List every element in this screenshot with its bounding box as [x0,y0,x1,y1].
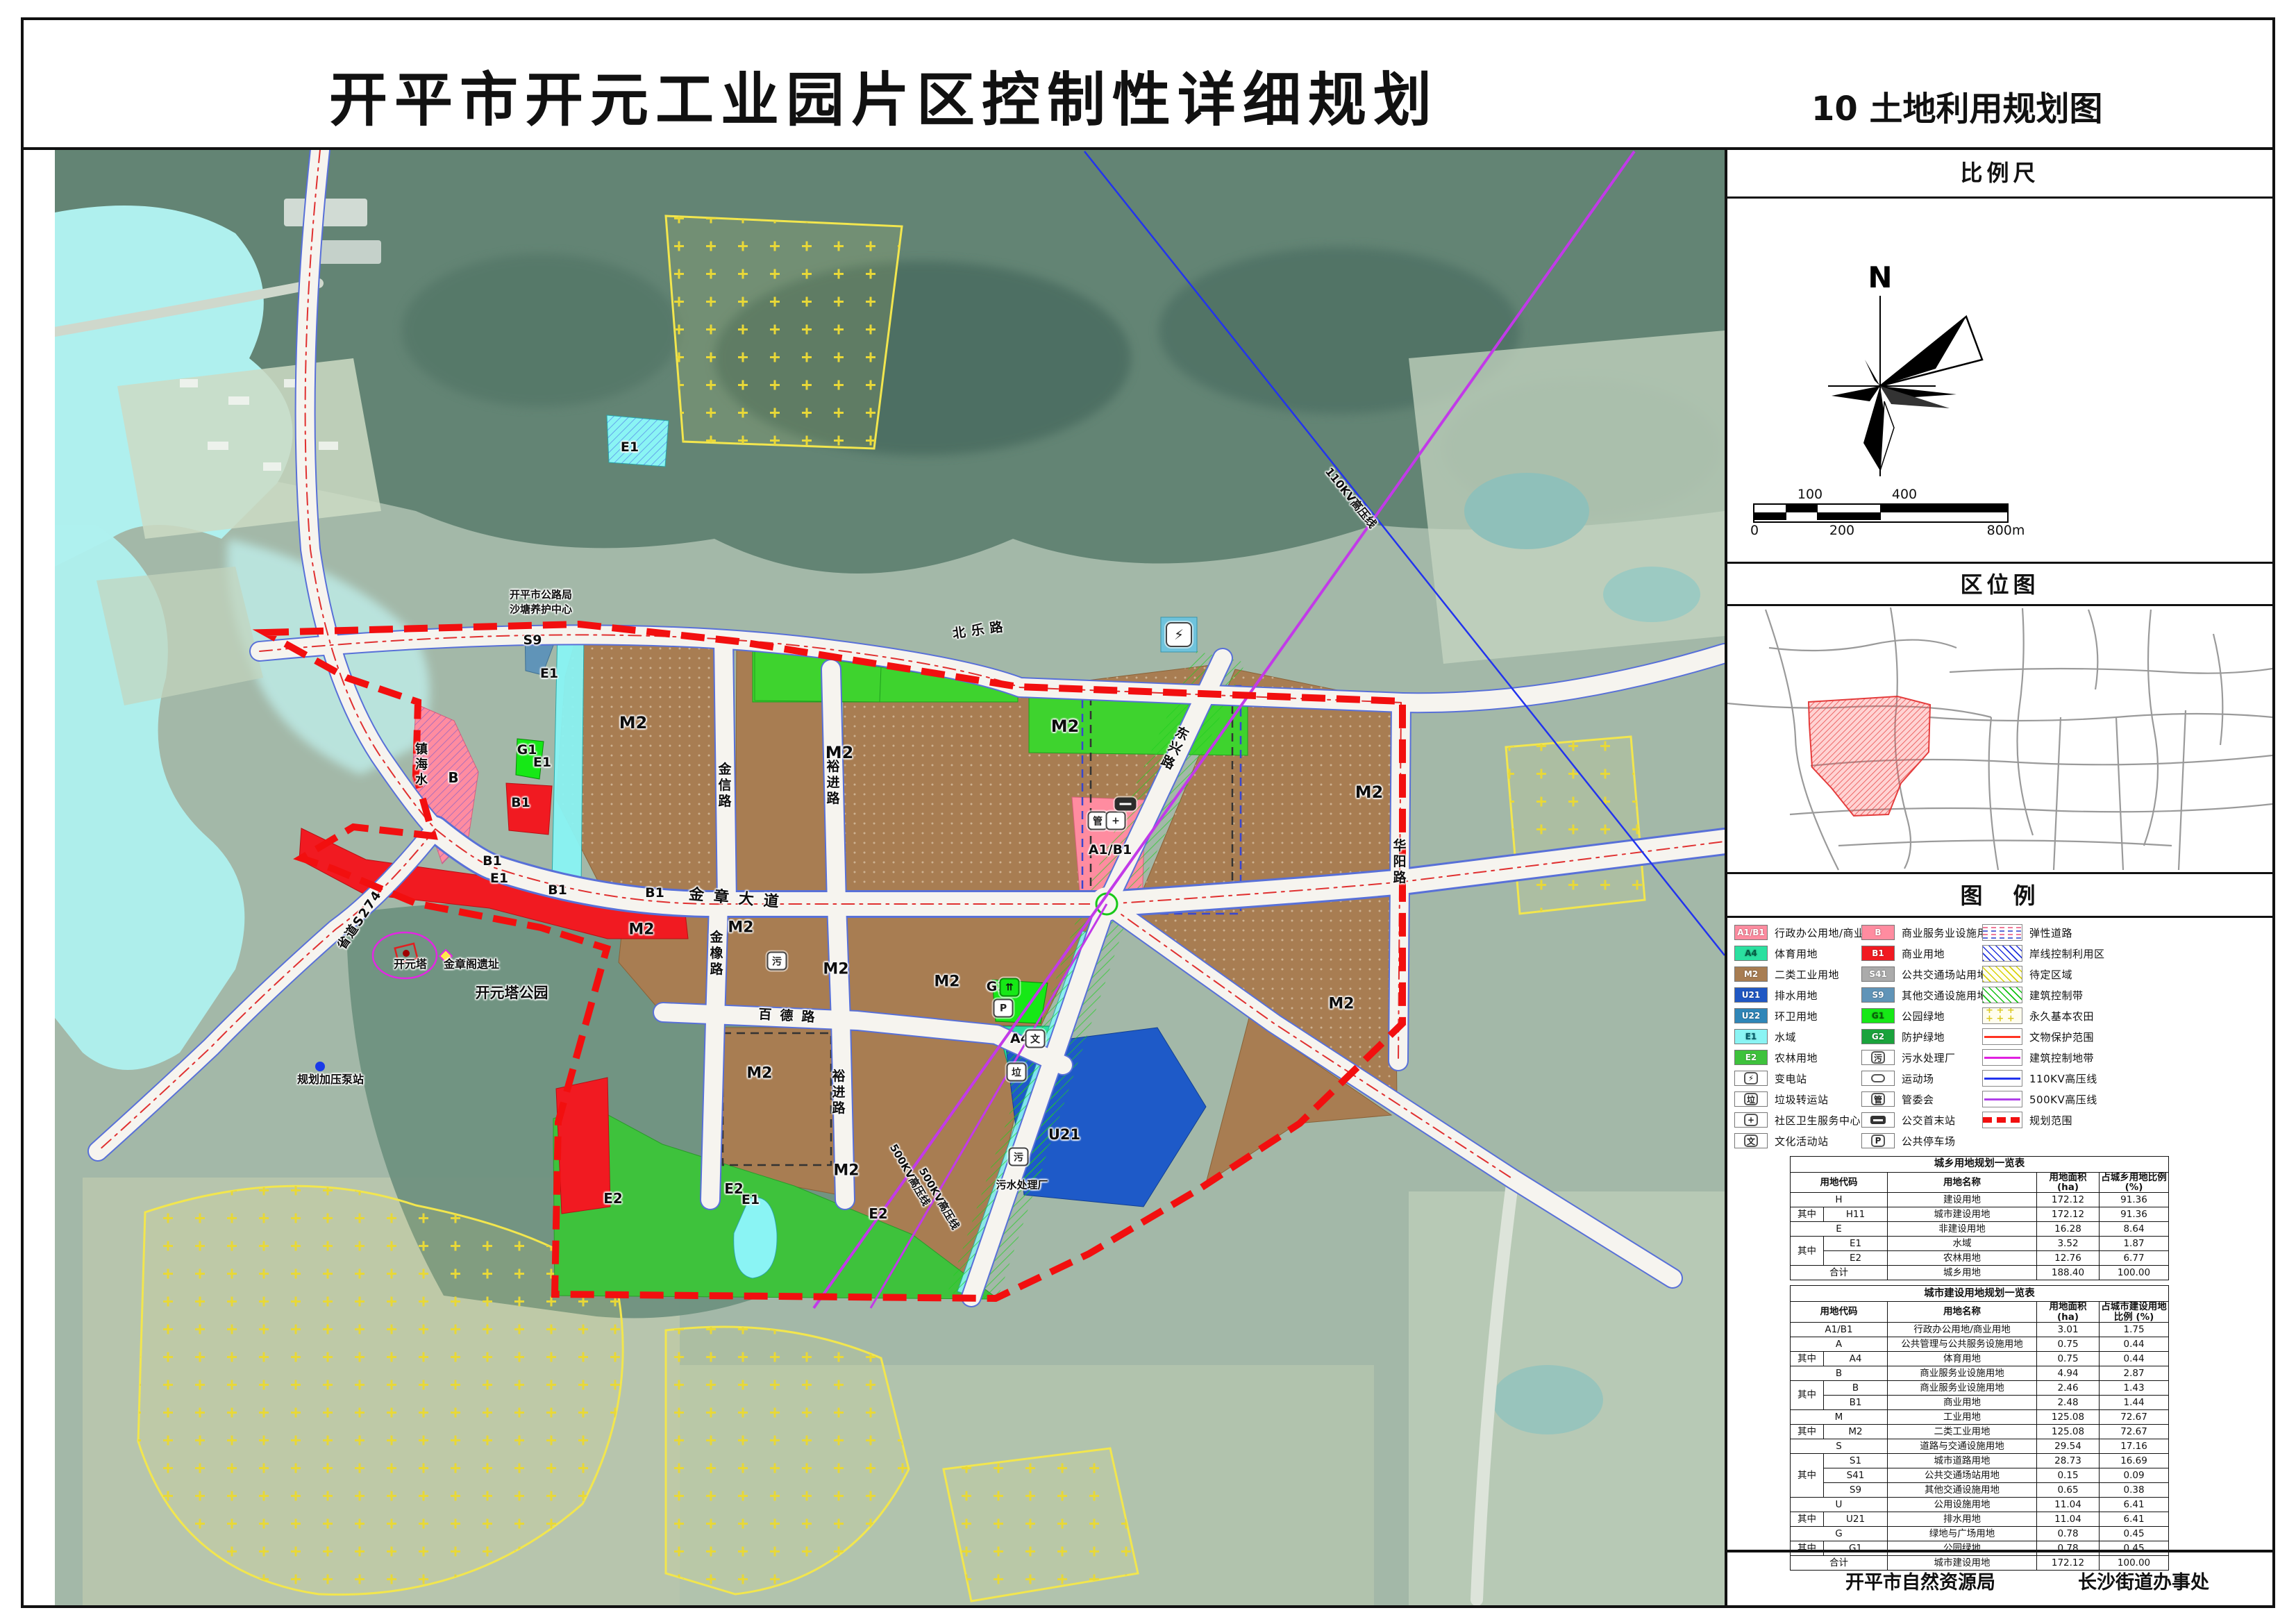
legend-item: 运动场 [1861,1068,1981,1089]
poi-label-kaiyuanta-park: 开元塔公园 [476,982,548,1003]
col-header: 用地面积 (ha) [2037,1173,2100,1193]
zone-label-m2: M2 [746,1065,772,1082]
legend-swatch-A4: A4 [1734,946,1768,961]
legend-item: 垃垃圾转运站 [1734,1089,1859,1110]
office-label: 长沙街道办事处 [2078,1567,2209,1594]
legend-swatch-B: B [1861,925,1895,940]
legend-column-2: B商业服务业设施用地B1商业用地S41公共交通场站用地S9其他交通设施用地G1公… [1861,922,1981,1151]
culture-station-icon: 文 [1734,1133,1768,1148]
legend-sample-line-red [1982,1028,2022,1045]
zone-label-m2: M2 [823,961,848,978]
legend-label: 永久基本农田 [2029,1009,2094,1023]
legend-item: 污污水处理厂 [1861,1047,1981,1068]
zone-label-m2: M2 [1328,996,1354,1013]
legend-item: 公交首末站 [1861,1110,1981,1130]
table-row: H建设用地172.1291.36 [1791,1193,2169,1207]
table-row: 其中A4体育用地0.750.44 [1791,1351,2169,1366]
legend-label: 环卫用地 [1775,1009,1818,1023]
legend-section-title: 图 例 [1727,872,2272,918]
legend-label: 其他交通设施用地 [1902,988,1988,1003]
zone-label-e1: E1 [741,1192,760,1207]
road-label-huayanglu: 华阳路 [1390,839,1409,887]
page-title: 开平市开元工业园片区控制性详细规划 [329,53,1439,137]
land-use-map: 北乐路金章大道省道S274金信路裕进路裕进路金橡路百德路东兴路华阳路M2M2M2… [55,150,1725,1605]
zone-label-e1: E1 [621,440,639,455]
legend-label: 规划范围 [2029,1113,2072,1128]
legend-label: 垃圾转运站 [1775,1092,1829,1107]
zone-label-e1: E1 [533,755,551,770]
sheet-header: 开平市开元工业园片区控制性详细规划 10 土地利用规划图 [24,20,2272,150]
legend-item: ⚡变电站 [1734,1068,1859,1089]
legend-item: B商业服务业设施用地 [1861,922,1981,943]
scale-bar: 100400 0200800m [1753,487,2031,542]
zone-label-u21: U21 [1048,1126,1080,1143]
legend-item: A4体育用地 [1734,943,1859,964]
parking-icon: P [994,999,1014,1018]
road-label-baidelu: 百德路 [758,1004,823,1026]
poi-label-zhenhai-water: 镇海水 [411,742,429,788]
location-map [1727,606,2272,872]
zone-label-m2: M2 [1355,782,1384,802]
legend-label: 商业用地 [1902,946,1945,961]
poi-label-kaiyuan-pagoda: 开元塔 [394,955,427,971]
table-row: 其中B商业服务业设施用地2.461.43 [1791,1380,2169,1395]
legend-item: M2二类工业用地 [1734,964,1859,985]
table-row: G绿地与广场用地0.780.45 [1791,1526,2169,1541]
zone-label-s9: S9 [523,633,542,648]
zone-label-m2: M2 [826,743,854,762]
col-header: 用地代码 [1791,1173,1888,1193]
zone-label-m2: M2 [833,1162,859,1180]
legend-item: G1公园绿地 [1861,1005,1981,1026]
sewage-plant-icon: 污 [1009,1148,1029,1166]
table-row: B商业服务业设施用地4.942.87 [1791,1366,2169,1380]
sheet-footer: 开平市自然资源局 长沙街道办事处 [1727,1550,2272,1608]
legend-item: P公共停车场 [1861,1130,1981,1151]
legend-label: 污水处理厂 [1902,1050,1956,1065]
legend-label: 体育用地 [1775,946,1818,961]
table-row: A公共管理与公共服务设施用地0.750.44 [1791,1337,2169,1351]
zone-label-b1: B1 [548,882,567,898]
table-row: 其中H11城市建设用地172.1291.36 [1791,1207,2169,1222]
scale-section-title: 比例尺 [1727,150,2272,199]
legend-label: 防护绿地 [1902,1030,1945,1044]
col-header: 用地名称 [1888,1173,2037,1193]
legend-swatch-U22: U22 [1734,1008,1768,1023]
table-row: S41公共交通场站用地0.150.09 [1791,1468,2169,1482]
legend-item: U22环卫用地 [1734,1005,1859,1026]
legend-label: 110KV高压线 [2029,1071,2097,1086]
management-committee-icon: 管 [1861,1091,1895,1107]
legend-label: 水域 [1775,1030,1796,1044]
legend-item: G2防护绿地 [1861,1026,1981,1047]
legend-swatch-E1: E1 [1734,1029,1768,1044]
legend-sample-dash-red [1982,1112,2022,1128]
legend-swatch-B1: B1 [1861,946,1895,961]
table-title: 城乡用地规划一览表 [1791,1157,2169,1173]
land-use-table: 城乡用地规划一览表用地代码用地名称用地面积 (ha)占城乡用地比例 (%)H建设… [1790,1156,2169,1280]
legend-sample-hatch-yellow [1982,966,2022,982]
legend-label: 二类工业用地 [1775,967,1839,982]
statistics-tables: 城乡用地规划一览表用地代码用地名称用地面积 (ha)占城乡用地比例 (%)H建设… [1790,1156,2168,1575]
legend-label: 建筑控制地带 [2029,1050,2094,1065]
legend-item: 建筑控制地带 [1982,1047,2121,1068]
road-label-jinxianglu: 金橡路 [707,930,726,978]
legend-item: S41公共交通场站用地 [1861,964,1981,985]
legend-label: 建筑控制带 [2029,988,2084,1003]
scale-bar-segments [1753,503,2009,523]
legend-item: 文文化活动站 [1734,1130,1859,1151]
legend-sample-hatch-green [1982,987,2022,1003]
col-header: 占城乡用地比例 (%) [2100,1173,2169,1193]
poi-label-jinzhangge-ruins: 金章阁遗址 [444,955,499,971]
legend-swatch-S9: S9 [1861,987,1895,1003]
legend-sample-elastic [1982,924,2022,941]
zone-label-a1b1: A1/B1 [1089,842,1132,857]
legend-label: 排水用地 [1775,988,1818,1003]
table-row: E2农林用地12.766.77 [1791,1251,2169,1266]
waste-transfer-icon: 垃 [1007,1063,1027,1082]
zone-label-m2: M2 [619,713,648,733]
bus-terminal-icon [1861,1112,1895,1128]
legend: A1/B1行政办公用地/商业用地A4体育用地M2二类工业用地U21排水用地U22… [1727,918,2272,1158]
legend-item: E2农林用地 [1734,1047,1859,1068]
zone-label-e2: E2 [869,1205,888,1222]
table-row: 其中U21排水用地11.046.41 [1791,1512,2169,1526]
legend-item: 500KV高压线 [1982,1089,2121,1110]
zone-label-e2: E2 [724,1180,744,1197]
table-row: S道路与交通设施用地29.5417.16 [1791,1439,2169,1453]
road-label-jinxinlu: 金信路 [715,762,734,810]
legend-label: 文物保护范围 [2029,1030,2094,1044]
zone-label-m2: M2 [628,921,654,939]
table-row: M工业用地125.0872.67 [1791,1409,2169,1424]
legend-label: 社区卫生服务中心 [1775,1113,1861,1128]
management-committee-icon: 管 [1088,812,1108,830]
legend-item: 待定区域 [1982,964,2121,985]
legend-item: 110KV高压线 [1982,1068,2121,1089]
legend-column-3: 弹性道路岸线控制利用区待定区域建筑控制带永久基本农田文物保护范围建筑控制地带11… [1982,922,2121,1130]
substation-icon: ⚡ [1166,622,1192,647]
legend-swatch-G2: G2 [1861,1029,1895,1044]
parking-icon: P [1861,1133,1895,1148]
legend-label: 待定区域 [2029,967,2072,982]
legend-swatch-G1: G1 [1861,1008,1895,1023]
legend-sample-hatch-blue [1982,945,2022,962]
legend-label: 公共交通场站用地 [1902,967,1988,982]
plan-sheet: 开平市开元工业园片区控制性详细规划 10 土地利用规划图 [21,17,2275,1608]
col-header: 用地代码 [1791,1302,1888,1322]
legend-label: 农林用地 [1775,1050,1818,1065]
legend-item: U21排水用地 [1734,985,1859,1005]
zone-label-b: B [448,769,458,786]
sewage-plant-icon: 污 [767,952,787,971]
poi-label-highway-bureau: 开平市公路局 [510,587,572,602]
zone-label-e1: E1 [540,666,558,681]
legend-item: +社区卫生服务中心 [1734,1110,1859,1130]
legend-item: 管管委会 [1861,1089,1981,1110]
legend-label: 文化活动站 [1775,1134,1829,1148]
land-use-table: 城市建设用地规划一览表用地代码用地名称用地面积 (ha)占城市建设用地比例 (%… [1790,1285,2169,1570]
arrows-icon: ⇈ [1000,978,1020,997]
col-header: 用地面积 (ha) [2037,1302,2100,1322]
table-row: 其中M2二类工业用地125.0872.67 [1791,1424,2169,1439]
bus-terminal-icon [1115,798,1137,811]
legend-column-1: A1/B1行政办公用地/商业用地A4体育用地M2二类工业用地U21排水用地U22… [1734,922,1859,1151]
legend-item: 规划范围 [1982,1110,2121,1130]
sheet-number-label: 10 土地利用规划图 [1811,81,2103,130]
scale-tick: 200 [1829,523,1854,538]
zone-label-e2: E2 [603,1190,623,1207]
legend-item: 永久基本农田 [1982,1005,2121,1026]
table-row: E非建设用地16.288.64 [1791,1222,2169,1237]
legend-item: E1水域 [1734,1026,1859,1047]
poi-label-pump-station: 规划加压泵站 [297,1070,364,1087]
poi-label-maintenance-center: 沙塘养护中心 [510,602,572,617]
north-label: N [1868,260,1892,294]
table-row: U公用设施用地11.046.41 [1791,1497,2169,1512]
legend-label: 公共停车场 [1902,1134,1956,1148]
scale-tick: 0 [1750,523,1759,538]
culture-station-icon: 文 [1025,1030,1046,1048]
poi-label-sewage-plant: 污水处理厂 [996,1178,1048,1192]
road-label-yujinlu: 裕进路 [823,760,842,807]
legend-swatch-U21: U21 [1734,987,1768,1003]
legend-item: 建筑控制带 [1982,985,2121,1005]
zone-label-m2: M2 [1051,717,1080,736]
legend-item: 弹性道路 [1982,922,2121,943]
scale-section: N 100400 [1727,199,2272,562]
legend-sample-farmland [1982,1007,2022,1024]
legend-label: 500KV高压线 [2029,1092,2097,1107]
waste-transfer-icon: 垃 [1734,1091,1768,1107]
legend-label: 管委会 [1902,1092,1934,1107]
zone-label-b1: B1 [645,885,664,901]
sports-field-icon [1861,1071,1895,1086]
authority-label: 开平市自然资源局 [1845,1567,1995,1594]
legend-sample-line-purple [1982,1091,2022,1107]
table-row: S9其他交通设施用地0.650.38 [1791,1482,2169,1497]
legend-label: 公园绿地 [1902,1009,1945,1023]
legend-label: 岸线控制利用区 [2029,946,2105,961]
legend-label: 公交首末站 [1902,1113,1956,1128]
zone-label-b1: B1 [511,795,530,810]
legend-sample-line-magenta [1982,1049,2022,1066]
map-canvas [55,150,1725,1605]
location-roads [1727,608,2272,870]
table-row: 合计城乡用地188.40100.00 [1791,1266,2169,1280]
legend-sample-line-blue [1982,1070,2022,1087]
legend-item: A1/B1行政办公用地/商业用地 [1734,922,1859,943]
legend-swatch-M2: M2 [1734,966,1768,982]
scale-tick: 100 [1798,487,1822,502]
table-row: A1/B1行政办公用地/商业用地3.011.75 [1791,1322,2169,1337]
legend-item: S9其他交通设施用地 [1861,985,1981,1005]
road-label-yujinlu: 裕进路 [829,1069,848,1117]
legend-label: 变电站 [1775,1071,1807,1086]
table-row: 其中E1水域3.521.87 [1791,1237,2169,1251]
zone-label-e1: E1 [490,871,508,886]
table-row: B1商业用地2.481.44 [1791,1395,2169,1409]
col-header: 用地名称 [1888,1302,2037,1322]
legend-swatch-S41: S41 [1861,966,1895,982]
table-row: 其中S1城市道路用地28.7316.69 [1791,1453,2169,1468]
legend-label: 运动场 [1902,1071,1934,1086]
legend-label: 弹性道路 [2029,926,2072,940]
legend-item: 文物保护范围 [1982,1026,2121,1047]
table-title: 城市建设用地规划一览表 [1791,1286,2169,1302]
community-health-icon: + [1106,812,1126,830]
scale-tick: 800m [1987,523,2025,538]
col-header: 占城市建设用地比例 (%) [2100,1302,2169,1322]
scale-tick: 400 [1892,487,1917,502]
sewage-plant-icon: 污 [1861,1050,1895,1065]
zone-label-b1: B1 [483,853,502,869]
legend-swatch-E2: E2 [1734,1050,1768,1065]
legend-item: B1商业用地 [1861,943,1981,964]
legend-swatch-A1/B1: A1/B1 [1734,925,1768,940]
location-section-title: 区位图 [1727,562,2272,606]
zone-label-m2: M2 [934,973,960,991]
legend-item: 岸线控制利用区 [1982,943,2121,964]
zone-label-m2: M2 [728,919,753,937]
sidebar: 比例尺 N 100400 [1725,150,2272,1605]
substation-icon: ⚡ [1734,1071,1768,1086]
community-health-icon: + [1734,1112,1768,1128]
